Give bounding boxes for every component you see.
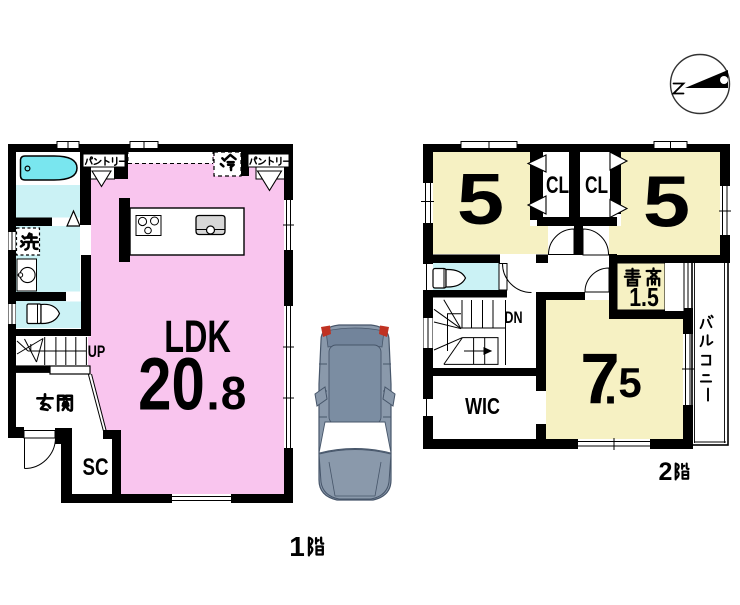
svg-text:DN: DN: [504, 308, 522, 327]
svg-text:2: 2: [659, 458, 673, 486]
svg-text:1.5: 1.5: [629, 283, 659, 313]
svg-text:5: 5: [618, 359, 641, 406]
svg-text:1: 1: [289, 531, 305, 562]
svg-text:5: 5: [457, 159, 504, 239]
svg-text:.: .: [604, 362, 617, 415]
svg-text:5: 5: [643, 162, 690, 242]
svg-text:8: 8: [221, 367, 247, 419]
svg-text:WIC: WIC: [465, 394, 500, 420]
svg-text:CL: CL: [585, 172, 608, 198]
svg-text:20: 20: [138, 344, 205, 426]
svg-text:SC: SC: [83, 454, 109, 481]
svg-text:CL: CL: [546, 172, 569, 198]
svg-text:.: .: [206, 368, 219, 421]
svg-text:UP: UP: [88, 342, 105, 361]
